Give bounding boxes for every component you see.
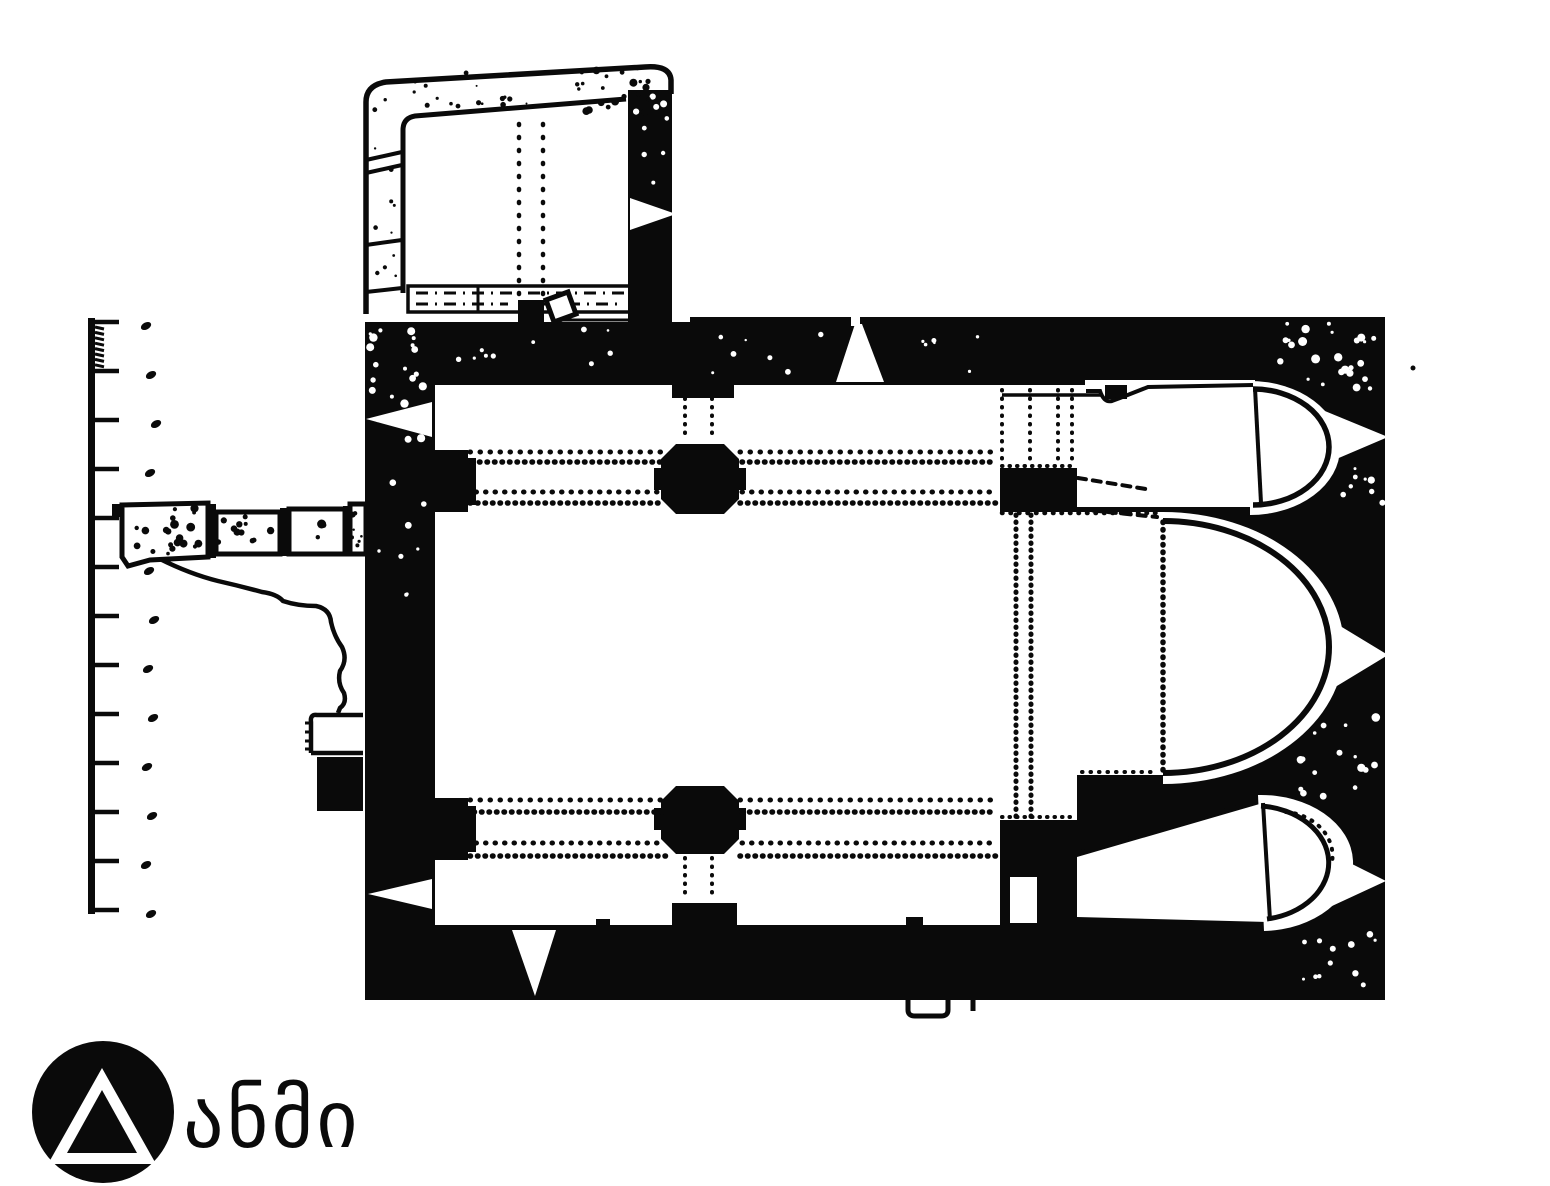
annex-stone-joints: [366, 152, 402, 292]
north-annex: [366, 67, 671, 322]
west-porch-remains: [305, 715, 363, 811]
logo-text: ანმი: [183, 1073, 361, 1166]
logo: ანმი: [32, 1041, 361, 1183]
scale-bar-ticks: [95, 320, 162, 919]
annex-threshold: [518, 300, 544, 322]
scale-bar: [88, 318, 162, 920]
crack-line: [160, 559, 345, 713]
scale-bar-subdivisions: [95, 327, 104, 367]
south-wall-stub: [672, 903, 737, 925]
north-bema-wall-block: [1000, 468, 1077, 512]
south-pier: [654, 786, 746, 854]
annex-door-leaf: [546, 292, 576, 322]
north-wall-stub: [672, 380, 734, 398]
south-wall-slot: [1010, 877, 1037, 923]
floor-plan-drawing: ანმი: [0, 0, 1550, 1186]
north-pier: [654, 444, 746, 514]
south-west-pilaster: [430, 798, 476, 860]
annex-inner-outline: [403, 99, 626, 293]
south-opening-strip: [1000, 775, 1077, 820]
floor-plan-figure: ანმი: [0, 0, 1550, 1186]
triangle-in-circle-icon: [32, 1041, 174, 1183]
bema-interior: [1000, 512, 1163, 775]
